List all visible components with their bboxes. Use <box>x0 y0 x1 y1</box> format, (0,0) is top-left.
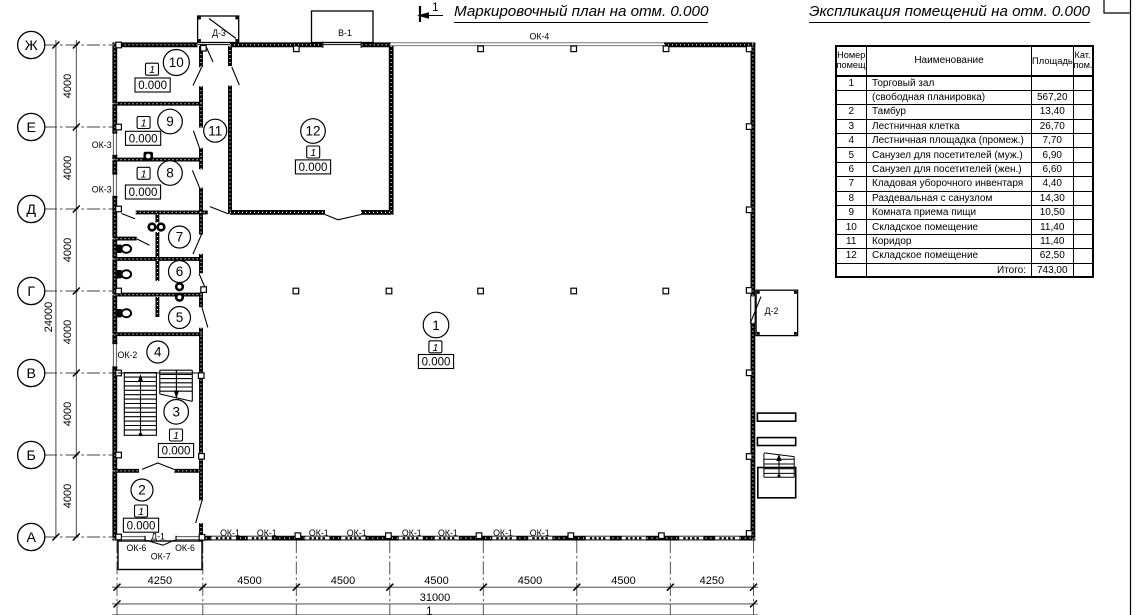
svg-text:4: 4 <box>154 345 162 360</box>
svg-text:ОК-6: ОК-6 <box>175 543 195 553</box>
svg-text:1: 1 <box>173 430 179 442</box>
svg-text:ОК-2: ОК-2 <box>118 350 138 360</box>
svg-text:ОК-1: ОК-1 <box>347 528 367 538</box>
svg-text:4250: 4250 <box>148 575 172 587</box>
svg-text:1: 1 <box>426 604 433 615</box>
svg-text:Е: Е <box>26 120 35 136</box>
svg-text:4000: 4000 <box>62 484 74 508</box>
svg-text:9: 9 <box>166 114 174 129</box>
svg-text:Д-1: Д-1 <box>151 532 165 542</box>
svg-text:Д-2: Д-2 <box>765 306 779 316</box>
svg-text:Д: Д <box>26 202 36 218</box>
svg-text:1: 1 <box>149 64 155 76</box>
svg-text:ОК-4: ОК-4 <box>530 32 550 42</box>
svg-text:0.000: 0.000 <box>299 162 328 174</box>
svg-text:ОК-1: ОК-1 <box>309 528 329 538</box>
svg-text:11: 11 <box>208 123 222 138</box>
svg-text:3: 3 <box>172 404 180 419</box>
svg-text:0.000: 0.000 <box>162 446 191 458</box>
svg-text:ОК-7: ОК-7 <box>151 552 171 562</box>
svg-text:ОК-1: ОК-1 <box>402 528 422 538</box>
svg-text:1: 1 <box>141 168 147 180</box>
svg-text:0.000: 0.000 <box>127 520 156 532</box>
svg-text:5: 5 <box>176 310 184 325</box>
svg-text:4000: 4000 <box>62 74 74 98</box>
svg-text:0.000: 0.000 <box>129 134 158 146</box>
svg-text:4000: 4000 <box>62 320 74 344</box>
svg-text:31000: 31000 <box>420 592 451 604</box>
svg-text:24000: 24000 <box>43 302 55 333</box>
svg-text:ОК-1: ОК-1 <box>438 528 458 538</box>
svg-text:ОК-1: ОК-1 <box>257 528 277 538</box>
svg-text:1: 1 <box>310 147 316 159</box>
svg-text:1: 1 <box>432 342 438 354</box>
svg-text:10: 10 <box>169 55 184 70</box>
svg-text:6: 6 <box>176 264 184 279</box>
svg-text:4500: 4500 <box>424 575 448 587</box>
svg-text:4500: 4500 <box>331 575 355 587</box>
svg-text:0.000: 0.000 <box>138 80 167 92</box>
svg-text:0.000: 0.000 <box>422 357 451 369</box>
svg-text:В: В <box>26 366 35 382</box>
svg-text:ОК-1: ОК-1 <box>530 528 550 538</box>
svg-text:ОК-3: ОК-3 <box>92 140 112 150</box>
svg-text:7: 7 <box>176 230 184 245</box>
svg-text:4250: 4250 <box>700 575 724 587</box>
svg-text:2: 2 <box>138 483 146 498</box>
svg-text:8: 8 <box>166 166 174 181</box>
svg-text:1: 1 <box>138 506 144 518</box>
svg-text:4000: 4000 <box>62 156 74 180</box>
svg-text:ОК-1: ОК-1 <box>493 528 513 538</box>
svg-text:4500: 4500 <box>237 575 261 587</box>
svg-text:12: 12 <box>305 124 320 139</box>
svg-text:Д-3: Д-3 <box>212 28 226 38</box>
svg-text:4500: 4500 <box>518 575 542 587</box>
svg-text:В-1: В-1 <box>338 28 352 38</box>
svg-text:4000: 4000 <box>62 402 74 426</box>
svg-text:0.000: 0.000 <box>129 187 158 199</box>
svg-text:Б: Б <box>27 448 36 464</box>
svg-text:А: А <box>26 530 36 546</box>
svg-text:1: 1 <box>432 318 440 333</box>
svg-text:Г: Г <box>27 284 35 300</box>
svg-text:4000: 4000 <box>62 238 74 262</box>
svg-text:ОК-1: ОК-1 <box>220 528 240 538</box>
svg-text:ОК-6: ОК-6 <box>127 543 147 553</box>
svg-text:1: 1 <box>432 0 439 14</box>
svg-text:ОК-3: ОК-3 <box>92 185 112 195</box>
svg-text:Ж: Ж <box>25 38 38 54</box>
svg-text:4500: 4500 <box>611 575 635 587</box>
svg-text:1: 1 <box>141 118 147 130</box>
